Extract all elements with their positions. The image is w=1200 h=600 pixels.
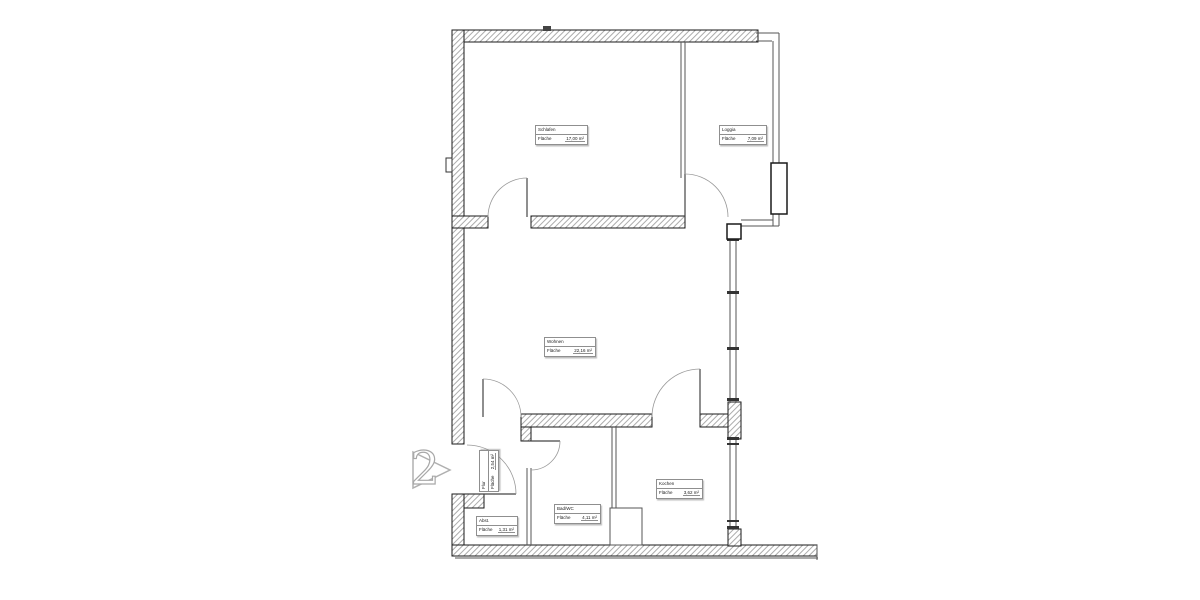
wall-bottom bbox=[452, 545, 817, 556]
room-name: Kochen bbox=[657, 480, 702, 489]
wall-left-lower bbox=[452, 494, 464, 546]
area-word: Fläche bbox=[547, 349, 561, 354]
room-name: Flur bbox=[480, 451, 489, 491]
wall-notch bbox=[446, 158, 452, 172]
door-arc-bedroom-right bbox=[685, 174, 728, 217]
kitchen-partition bbox=[612, 427, 616, 508]
wall-left bbox=[452, 30, 464, 444]
room-name: Abst. bbox=[477, 517, 517, 526]
area-value: 1,31 m² bbox=[498, 528, 515, 534]
room-label-bad-wc: Bad/WC Fläche 4,11 m² bbox=[554, 504, 601, 524]
unit-marker: 2 bbox=[410, 441, 450, 495]
wall-lower-middle bbox=[521, 414, 652, 427]
kitchen-window bbox=[730, 438, 736, 529]
top-wall-tick bbox=[543, 26, 551, 31]
door-arc-kitchen bbox=[652, 369, 700, 417]
area-value: 3,62 m² bbox=[683, 491, 700, 497]
area-value: 7,09 m² bbox=[747, 137, 764, 143]
exterior-walls bbox=[452, 30, 817, 556]
wall-bath-stub bbox=[521, 427, 531, 441]
area-word: Fläche bbox=[538, 137, 552, 142]
area-value: 4,11 m² bbox=[581, 516, 598, 522]
duct-shaft bbox=[610, 508, 642, 545]
area-word: Fläche bbox=[659, 491, 673, 496]
door-arc-bedroom-left bbox=[488, 178, 527, 217]
wall-top bbox=[452, 30, 758, 42]
room-label-abstellraum: Abst. Fläche 1,31 m² bbox=[476, 516, 518, 536]
wall-corner-v bbox=[728, 402, 741, 439]
column-loggia-right bbox=[771, 163, 787, 214]
room-label-loggia: Loggia Fläche 7,09 m² bbox=[719, 125, 767, 145]
area-word: Fläche bbox=[479, 528, 493, 533]
wall-middle-left-stub bbox=[452, 216, 488, 228]
wall-corner-h bbox=[700, 414, 729, 427]
room-label-wohnen: Wohnen Fläche 22,16 m² bbox=[544, 337, 596, 357]
room-divider-wall bbox=[681, 42, 685, 178]
thin-walls bbox=[455, 33, 818, 560]
door-arc-bath bbox=[531, 441, 560, 470]
room-label-flur: Flur Fläche 2,54 m² bbox=[479, 450, 499, 492]
area-word: Fläche bbox=[722, 137, 736, 142]
wall-middle-main bbox=[531, 216, 685, 228]
room-name: Bad/WC bbox=[555, 505, 600, 514]
bath-wall bbox=[527, 468, 531, 545]
area-value: 17,00 m² bbox=[565, 137, 585, 143]
area-value: 22,16 m² bbox=[573, 349, 593, 355]
unit-number: 2 bbox=[410, 441, 439, 495]
floorplan-canvas: 2 Schlafen Fläche 17,00 m² Loggia Fläche… bbox=[0, 0, 1200, 600]
room-name: Wohnen bbox=[545, 338, 595, 347]
area-word: Fläche bbox=[557, 516, 571, 521]
room-label-kochen: Kochen Fläche 3,62 m² bbox=[656, 479, 703, 499]
wall-right-bottom-stub bbox=[728, 529, 741, 546]
room-name: Loggia bbox=[720, 126, 766, 135]
area-word: Fläche bbox=[491, 475, 496, 489]
living-window bbox=[730, 239, 736, 402]
room-name: Schlafen bbox=[536, 126, 587, 135]
window-mullions bbox=[543, 26, 739, 529]
room-label-schlafen: Schlafen Fläche 17,00 m² bbox=[535, 125, 588, 145]
column-loggia-bottom bbox=[727, 224, 741, 239]
area-value: 2,54 m² bbox=[491, 453, 497, 470]
door-arc-hall-living bbox=[483, 379, 521, 417]
